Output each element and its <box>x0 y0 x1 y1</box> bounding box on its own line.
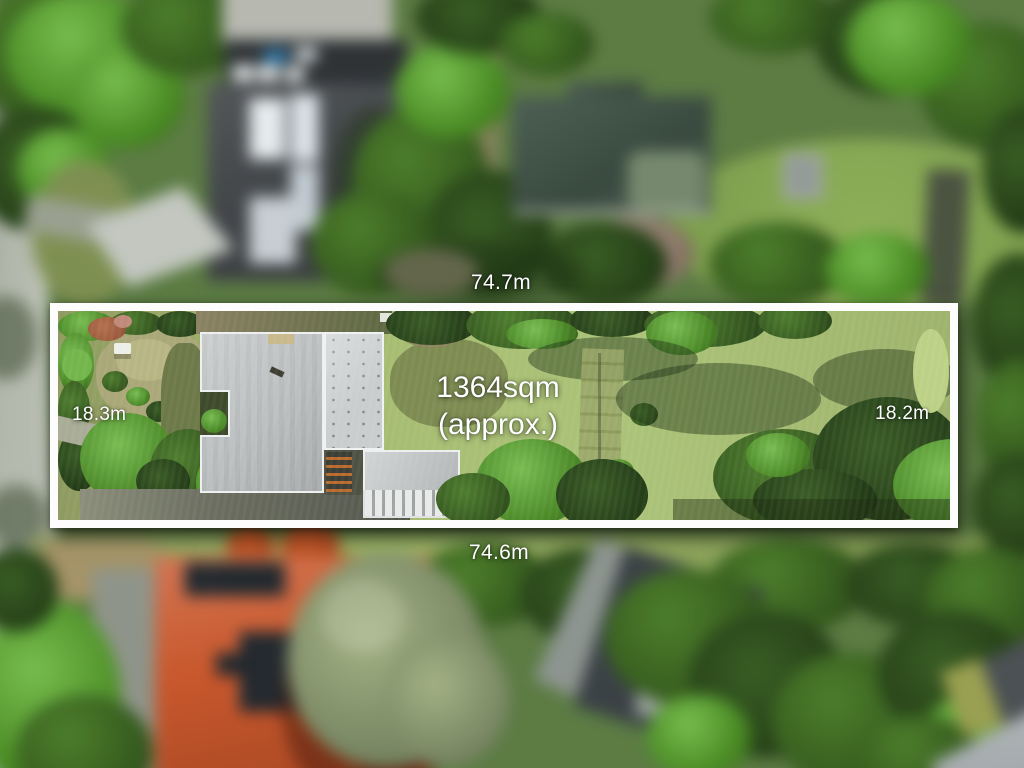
skylight <box>285 67 304 82</box>
boundary-length-bottom: 74.6m <box>469 541 529 565</box>
shrub <box>126 387 150 406</box>
shadow <box>673 499 950 520</box>
skylight <box>258 65 279 82</box>
aerial-photo: 74.7m 74.6m 18.3m 18.2m 1364sqm (approx.… <box>0 0 1024 768</box>
skylight <box>296 48 317 61</box>
boundary-length-right: 18.2m <box>875 403 929 425</box>
roof-highlight <box>628 151 706 210</box>
shrub <box>62 349 92 381</box>
garden-shed <box>783 153 823 199</box>
shadow <box>114 354 131 359</box>
garden-bench <box>114 343 131 354</box>
tree <box>556 459 648 520</box>
tree <box>758 311 832 339</box>
roof-fascia <box>514 210 709 215</box>
land-area-value: 1364sqm <box>436 369 559 406</box>
roof-object <box>268 334 294 344</box>
tree <box>436 473 510 520</box>
tree <box>570 311 654 337</box>
solar-panels <box>184 563 285 597</box>
tree <box>499 12 594 75</box>
tree <box>384 632 510 768</box>
pergola <box>326 452 352 492</box>
land-area-qualifier: (approx.) <box>436 406 559 443</box>
skylight <box>250 98 286 159</box>
path <box>921 169 970 308</box>
shrub-flowering <box>114 315 132 328</box>
tree <box>394 44 510 139</box>
roof-vent <box>216 653 243 676</box>
grass-patch <box>913 329 949 413</box>
house-wing-roof <box>324 332 384 450</box>
shrub <box>201 409 227 433</box>
shrub <box>102 371 128 392</box>
shadow <box>616 363 821 435</box>
tree-highlight <box>321 579 405 653</box>
boundary-length-top: 74.7m <box>471 271 531 295</box>
pool-cover <box>264 50 287 63</box>
boundary-length-left: 18.3m <box>72 404 126 426</box>
tree <box>825 233 930 307</box>
solar-panels <box>250 197 296 264</box>
dirt-patch <box>196 311 392 334</box>
land-area-label: 1364sqm (approx.) <box>436 369 559 443</box>
tree <box>746 433 810 477</box>
skylight <box>233 65 254 82</box>
skylight <box>290 94 318 161</box>
